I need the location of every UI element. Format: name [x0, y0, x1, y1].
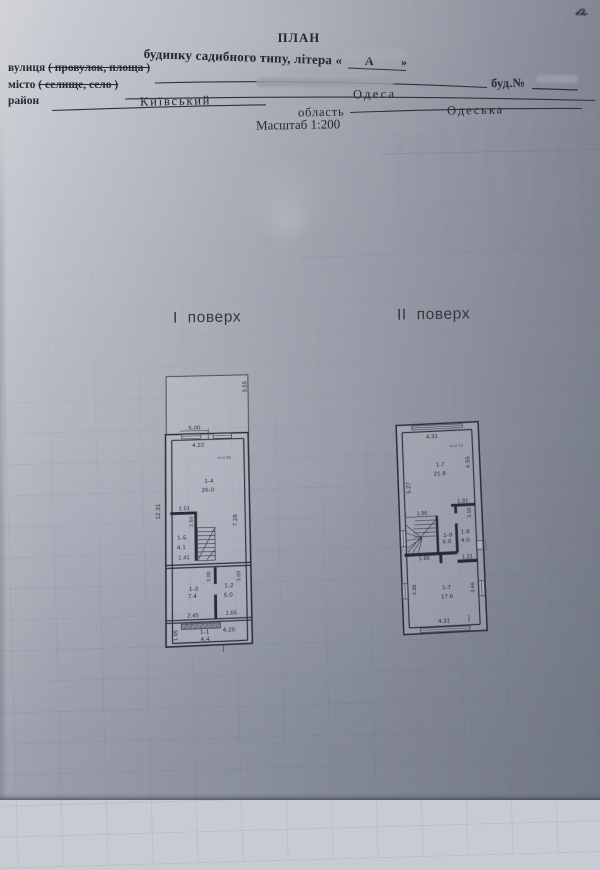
svg-text:1-3: 1-3 [189, 586, 198, 593]
svg-text:7.26: 7.26 [233, 514, 240, 526]
svg-text:4.20: 4.20 [223, 627, 236, 634]
svg-text:4.0: 4.0 [461, 537, 470, 544]
svg-text:2.60: 2.60 [189, 516, 196, 527]
svg-text:1-9: 1-9 [443, 532, 452, 539]
svg-text:12.31: 12.31 [156, 504, 163, 520]
svg-text:4.31: 4.31 [438, 618, 450, 625]
svg-text:1.41: 1.41 [178, 555, 189, 562]
svg-text:4.31: 4.31 [426, 434, 438, 441]
svg-text:3.66: 3.66 [470, 582, 477, 593]
svg-text:4.38: 4.38 [412, 584, 419, 595]
svg-text:4.1: 4.1 [177, 545, 186, 552]
svg-text:1.96: 1.96 [419, 555, 430, 562]
svg-text:21.8: 21.8 [434, 471, 446, 478]
svg-text:7.4: 7.4 [188, 594, 197, 601]
svg-text:h=2.85: h=2.85 [218, 456, 231, 461]
svg-text:3.00: 3.00 [206, 571, 213, 582]
svg-text:2.45: 2.45 [187, 613, 199, 620]
svg-text:1-7: 1-7 [436, 462, 445, 469]
svg-text:26.0: 26.0 [202, 487, 214, 494]
svg-text:4.55: 4.55 [465, 456, 472, 468]
svg-text:17.6: 17.6 [441, 594, 453, 601]
svg-text:1.21: 1.21 [462, 554, 473, 561]
svg-text:4.4: 4.4 [201, 636, 210, 643]
svg-text:1-4: 1-4 [204, 478, 213, 485]
svg-text:h=2.70: h=2.70 [450, 443, 463, 448]
svg-text:3.00: 3.00 [236, 570, 243, 581]
svg-text:1.05: 1.05 [173, 630, 180, 642]
svg-text:5.0: 5.0 [224, 592, 233, 599]
svg-text:1-7: 1-7 [442, 585, 451, 592]
svg-text:6.0: 6.0 [443, 539, 452, 546]
svg-text:5.27: 5.27 [406, 482, 413, 494]
svg-text:1-5: 1-5 [177, 535, 186, 542]
svg-text:1-8: 1-8 [461, 529, 470, 536]
svg-text:3.55: 3.55 [242, 381, 249, 393]
svg-text:3.50: 3.50 [467, 507, 474, 518]
svg-text:1-1: 1-1 [200, 629, 210, 636]
svg-text:1-2: 1-2 [224, 583, 233, 590]
svg-text:4.22: 4.22 [192, 442, 204, 449]
svg-text:1.65: 1.65 [226, 610, 238, 617]
